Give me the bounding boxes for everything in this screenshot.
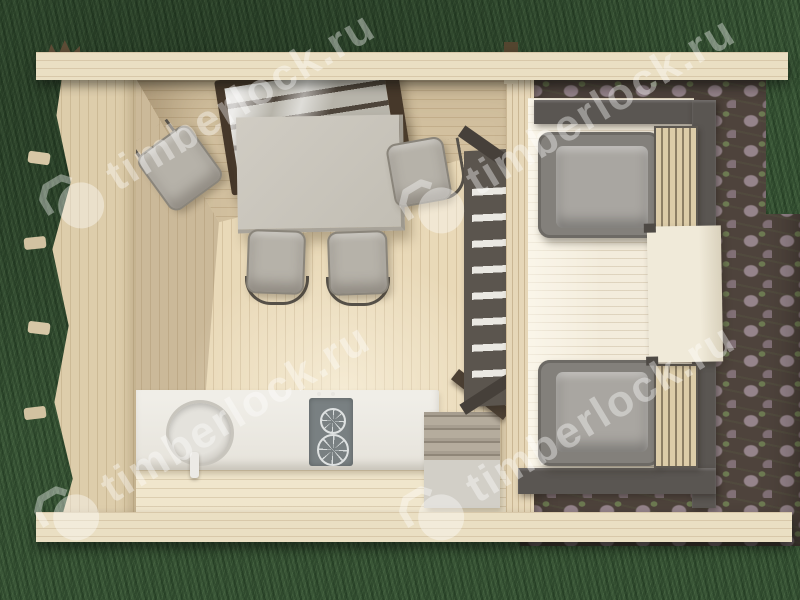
stove-knob-2: [331, 392, 335, 396]
roof-eave-top: [36, 52, 788, 80]
armchair-bottom: [538, 360, 660, 466]
terrace-beam-top: [534, 100, 716, 124]
grass-corner-patch: [766, 78, 800, 214]
terrace-beam-bottom: [518, 468, 716, 494]
storage-bench-slats: [424, 412, 500, 460]
wall-shelf-rack: [464, 149, 512, 408]
storage-bench: [424, 412, 500, 508]
terrace-table-foot-top: [644, 223, 656, 232]
slat-bench-top: [654, 126, 698, 234]
foundation-beam-bottom: [36, 512, 792, 542]
faucet: [190, 452, 199, 478]
log-notch-2: [23, 236, 46, 250]
chair-right: [385, 135, 453, 208]
terrace-table: [647, 225, 723, 362]
armchair-bottom-cushion: [556, 372, 648, 452]
sink: [166, 400, 234, 466]
render-canvas: timberlock.ru timberlock.ru timberlock.r…: [0, 0, 800, 600]
armchair-top-cushion: [556, 146, 648, 228]
chair-bottom-1: [246, 229, 306, 295]
slat-bench-bottom: [654, 364, 698, 468]
shelf-rack-slats: [472, 187, 506, 387]
stove-burner-small: [320, 408, 346, 434]
dining-table: [236, 115, 405, 234]
stove-knob-1: [317, 392, 321, 396]
chair-bottom-2: [327, 230, 389, 296]
log-notch-3: [27, 321, 50, 336]
terrace-table-foot-bottom: [646, 356, 658, 365]
armchair-top: [538, 132, 660, 238]
stove-burner-large: [317, 434, 349, 466]
